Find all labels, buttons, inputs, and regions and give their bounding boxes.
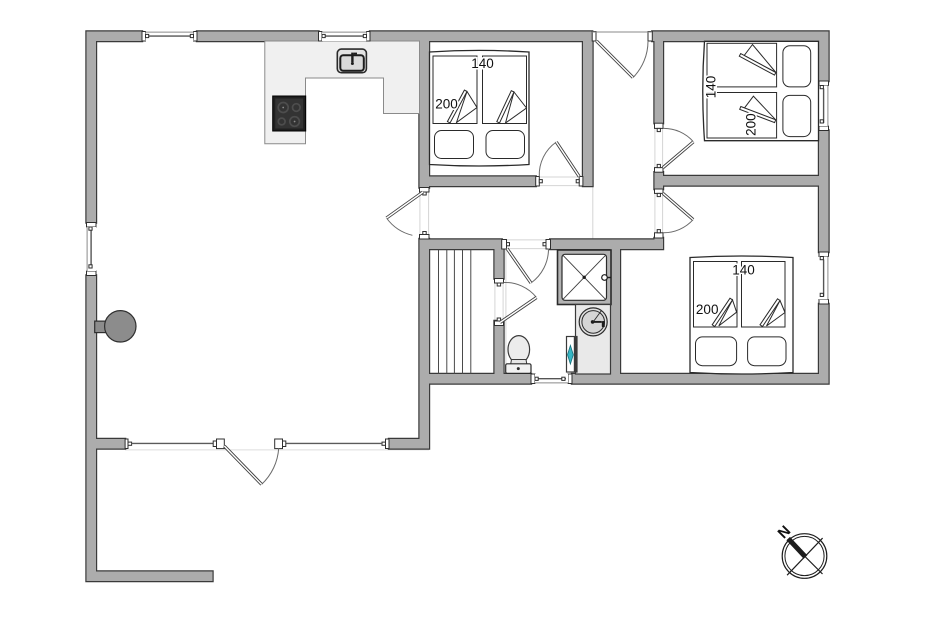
svg-text:140: 140	[471, 56, 494, 71]
svg-text:140: 140	[732, 263, 755, 278]
svg-text:200: 200	[696, 302, 719, 317]
svg-text:140: 140	[703, 76, 718, 99]
svg-text:200: 200	[435, 97, 458, 112]
svg-text:200: 200	[743, 113, 758, 136]
